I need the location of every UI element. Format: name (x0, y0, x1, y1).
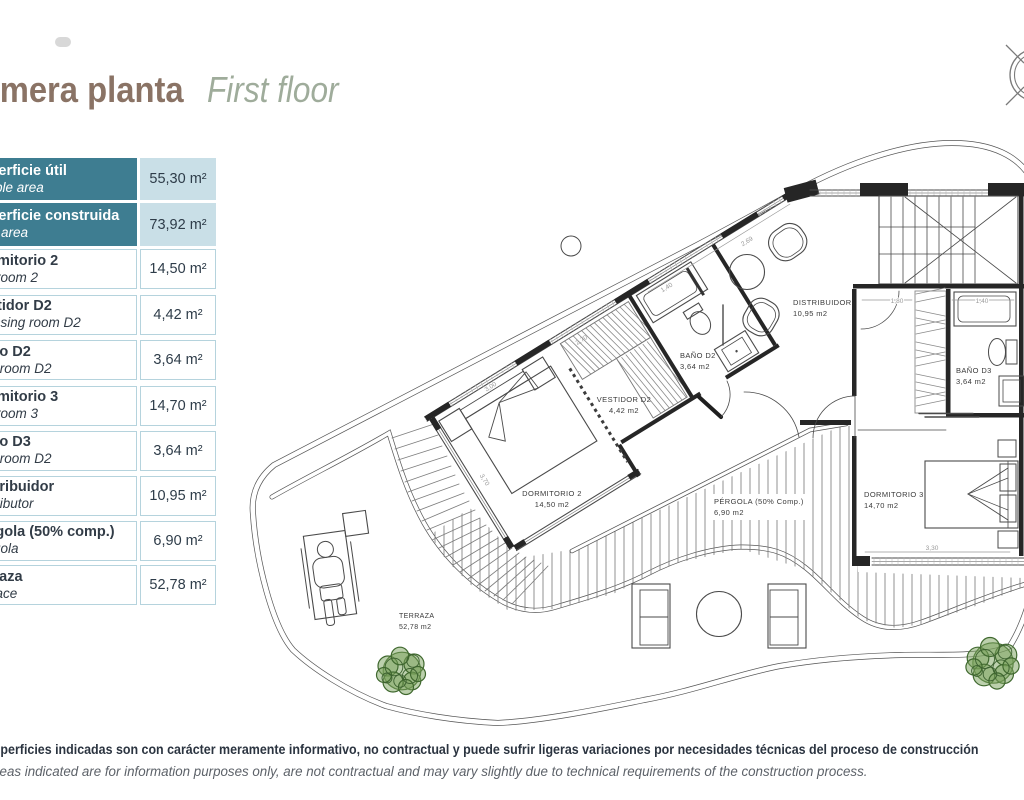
svg-text:DISTRIBUIDOR: DISTRIBUIDOR (793, 298, 852, 307)
svg-text:BAÑO D3: BAÑO D3 (956, 366, 992, 375)
svg-text:2,69: 2,69 (740, 235, 755, 248)
svg-text:DORMITORIO 3: DORMITORIO 3 (864, 490, 924, 499)
svg-text:10,95 m2: 10,95 m2 (793, 309, 827, 318)
svg-text:BAÑO D2: BAÑO D2 (680, 351, 716, 360)
svg-text:52,78 m2: 52,78 m2 (399, 624, 431, 631)
svg-text:PÉRGOLA (50% Comp.): PÉRGOLA (50% Comp.) (714, 497, 804, 506)
svg-text:1,40: 1,40 (976, 298, 989, 305)
svg-text:3,70: 3,70 (478, 473, 491, 488)
svg-text:3,30: 3,30 (926, 545, 939, 552)
svg-text:DORMITORIO 2: DORMITORIO 2 (522, 489, 582, 498)
svg-text:14,70 m2: 14,70 m2 (864, 501, 898, 510)
svg-text:4,42 m2: 4,42 m2 (609, 406, 639, 415)
svg-text:14,50 m2: 14,50 m2 (535, 500, 569, 509)
svg-text:3,64 m2: 3,64 m2 (680, 362, 710, 371)
svg-text:TERRAZA: TERRAZA (399, 613, 434, 620)
svg-text:VESTIDOR D2: VESTIDOR D2 (597, 395, 651, 404)
svg-text:6,90 m2: 6,90 m2 (714, 508, 744, 517)
svg-text:1,80: 1,80 (891, 298, 904, 305)
svg-text:3,64 m2: 3,64 m2 (956, 377, 986, 386)
